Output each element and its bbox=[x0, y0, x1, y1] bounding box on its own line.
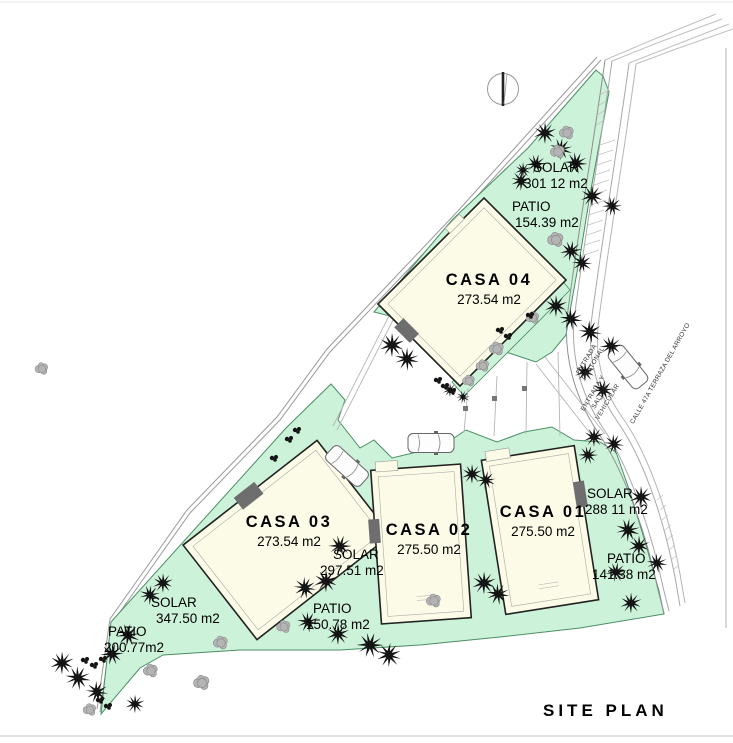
palm-tree-icon bbox=[50, 651, 73, 674]
bush-icon bbox=[434, 377, 442, 384]
road-lines-northeast bbox=[605, 14, 733, 64]
casa-04-label: CASA 04 273.54 m2 bbox=[446, 271, 533, 307]
palm-tree-icon bbox=[126, 695, 145, 714]
zone-label-patio-casa03: PATIO 200.77m2 bbox=[104, 624, 164, 655]
north-arrow-icon bbox=[488, 72, 519, 106]
zone-type: PATIO bbox=[607, 551, 656, 567]
palm-tree-icon bbox=[61, 661, 94, 694]
round-tree-icon bbox=[83, 704, 96, 716]
bush-icon bbox=[90, 662, 98, 669]
zone-type: PATIO bbox=[108, 624, 164, 640]
zone-area: 288 11 m2 bbox=[585, 502, 648, 518]
bush-icon bbox=[99, 656, 107, 663]
zone-type: PATIO bbox=[313, 601, 370, 617]
casa-02-garage bbox=[368, 519, 381, 544]
zone-label-patio-casa02: PATIO 150.78 m2 bbox=[306, 601, 370, 632]
zone-label-patio-north: PATIO 154.39 m2 bbox=[512, 199, 579, 230]
site-plan-canvas: SOLAR 301 12 m2 PATIO 154.39 m2 SOLAR 28… bbox=[0, 0, 733, 743]
casa-01-name: CASA 01 bbox=[500, 503, 587, 522]
zone-area: 297.51 m2 bbox=[320, 563, 384, 579]
round-tree-icon bbox=[194, 675, 209, 689]
casa-03-area: 273.54 m2 bbox=[246, 534, 333, 549]
casa-03-name: CASA 03 bbox=[246, 513, 333, 532]
casa-02-label: CASA 02 275.50 m2 bbox=[386, 521, 473, 557]
zone-area: 347.50 m2 bbox=[156, 611, 220, 627]
casa-01-label: CASA 01 275.50 m2 bbox=[500, 503, 587, 539]
casa-01-area: 275.50 m2 bbox=[500, 524, 587, 539]
zone-type: SOLAR bbox=[151, 595, 220, 611]
car-icon bbox=[408, 431, 454, 455]
zone-type: SOLAR bbox=[533, 160, 588, 176]
zone-label-solar-casa03: SOLAR 347.50 m2 bbox=[151, 595, 220, 626]
zone-label-solar-casa02: SOLAR 297.51 m2 bbox=[320, 547, 384, 578]
bush-icon bbox=[81, 657, 89, 664]
zone-type: PATIO bbox=[512, 199, 579, 215]
zone-type: SOLAR bbox=[587, 486, 648, 502]
palm-tree-icon bbox=[391, 343, 423, 375]
palm-tree-icon bbox=[380, 333, 404, 357]
casa-02-area: 275.50 m2 bbox=[386, 542, 473, 557]
casa-04-name: CASA 04 bbox=[446, 271, 533, 290]
zone-area: 150.78 m2 bbox=[306, 617, 370, 633]
round-tree-icon bbox=[35, 363, 48, 375]
zone-area: 200.77m2 bbox=[104, 640, 164, 656]
zone-type: SOLAR bbox=[333, 547, 384, 563]
zone-area: 141.38 m2 bbox=[592, 567, 656, 583]
casa-02-name: CASA 02 bbox=[386, 521, 473, 540]
zone-area: 154.39 m2 bbox=[515, 215, 579, 231]
palm-tree-icon bbox=[598, 192, 626, 220]
page-title: SITE PLAN bbox=[543, 701, 668, 721]
round-tree-icon bbox=[143, 664, 157, 677]
casa-04-area: 273.54 m2 bbox=[446, 292, 533, 307]
zone-label-patio-casa01: PATIO 141.38 m2 bbox=[592, 551, 656, 582]
zone-label-solar-north: SOLAR 301 12 m2 bbox=[524, 160, 588, 191]
casa-03-label: CASA 03 273.54 m2 bbox=[246, 513, 333, 549]
zone-label-solar-casa01: SOLAR 288 11 m2 bbox=[585, 486, 648, 517]
zone-area: 301 12 m2 bbox=[524, 176, 588, 192]
